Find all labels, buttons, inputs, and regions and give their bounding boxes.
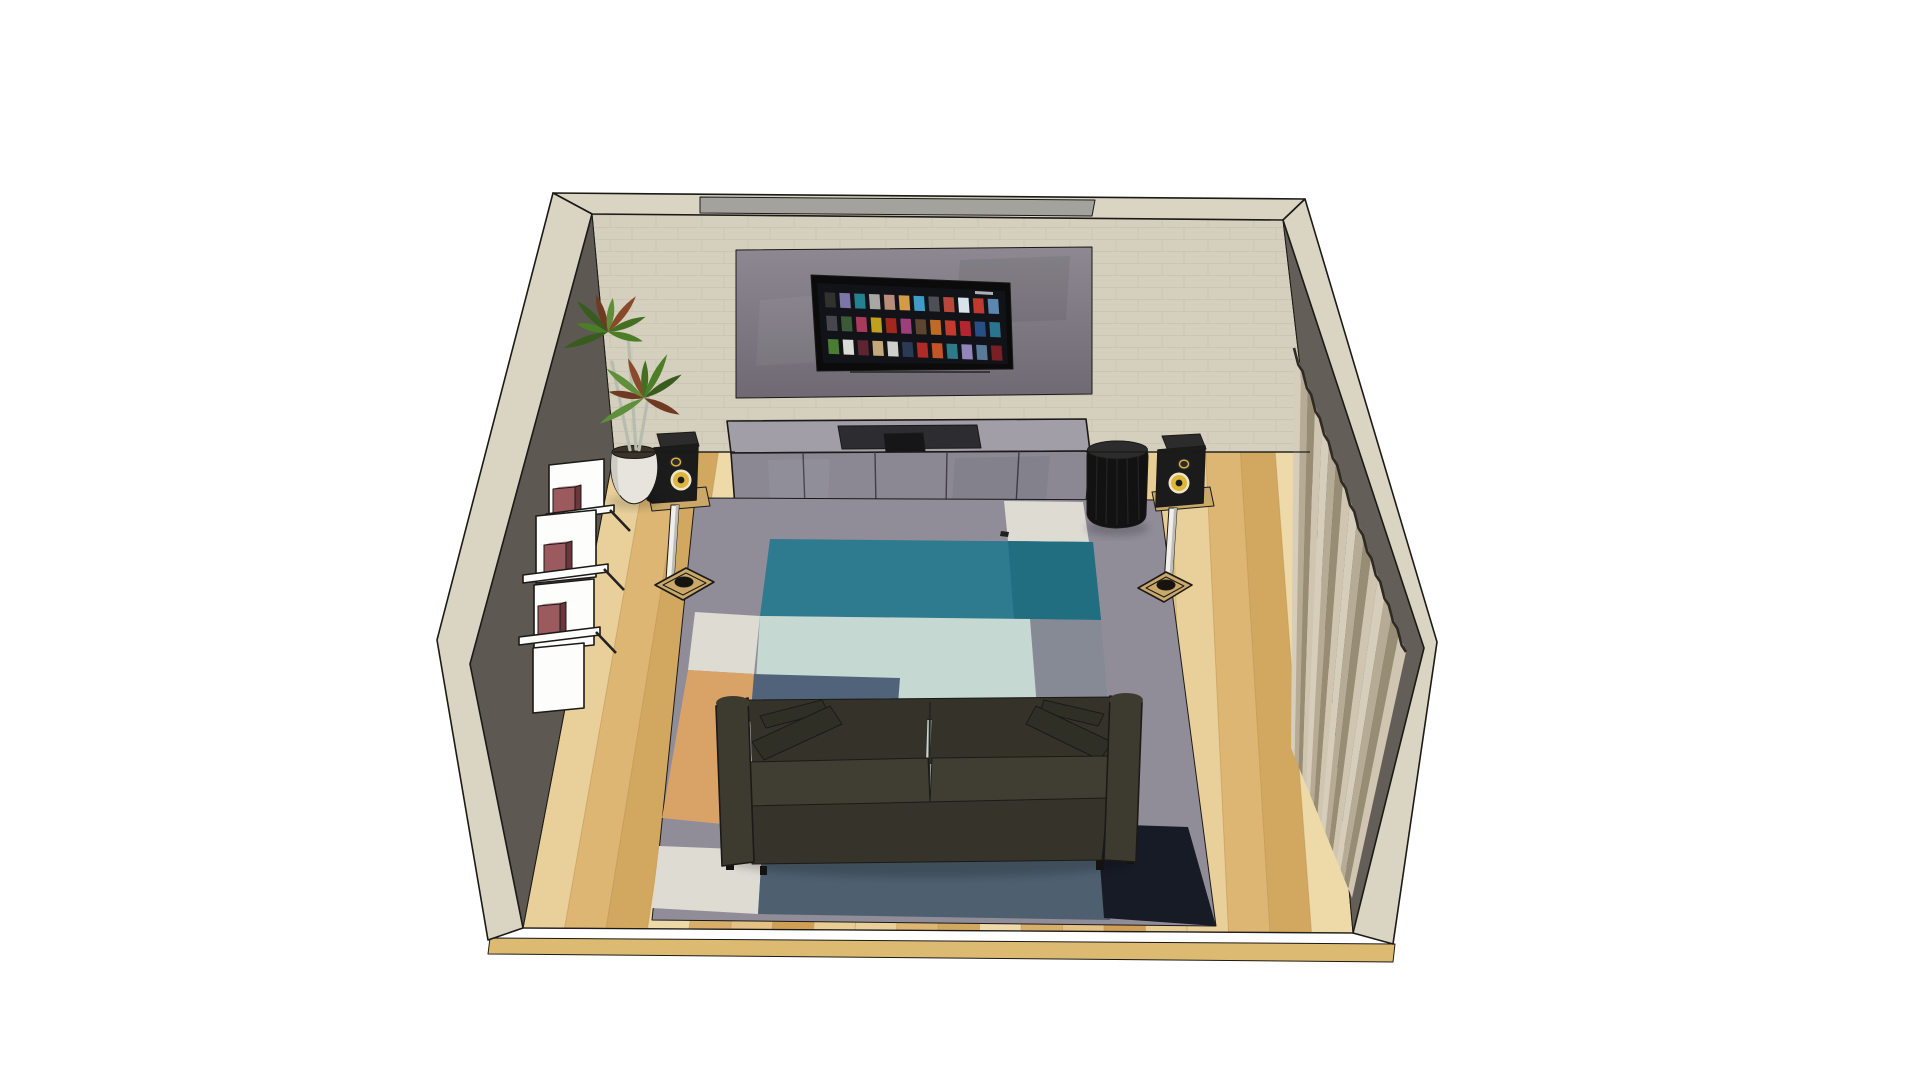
movie-poster [854,294,866,309]
movie-poster [915,319,927,334]
movie-poster [885,318,897,333]
movie-poster [974,322,986,337]
rug-patch-ivory-back [1004,501,1089,542]
movie-poster [871,317,883,332]
panel-top-cap [700,197,1095,216]
movie-poster [917,343,929,358]
movie-poster [928,296,940,311]
movie-poster [988,299,1000,314]
movie-poster [824,292,836,307]
movie-poster [946,344,958,359]
right-base-flange [1157,580,1175,590]
movie-poster [991,345,1003,360]
movie-poster [958,298,970,313]
left-base-flange [675,577,693,587]
sofa-foot [760,866,767,875]
rug-patch-teal-deep [1008,541,1101,620]
tv[interactable] [811,275,1013,372]
movie-poster [900,319,912,334]
movie-poster [902,342,914,357]
sofa-seat-cushion [746,758,930,808]
remote-on-rug[interactable] [1000,531,1009,537]
movie-poster [943,297,955,312]
movie-poster [828,339,840,354]
room-3d-viewport[interactable] [0,0,1920,1080]
movie-poster [869,294,881,309]
movie-poster [960,321,972,336]
movie-poster [976,345,988,360]
movie-poster [945,320,957,335]
movie-poster [856,317,868,332]
render-canvas[interactable] [0,0,1920,1080]
door-sheen [768,459,830,501]
door-shade [952,456,1050,501]
movie-poster [887,341,899,356]
sofa-right-arm [1104,696,1142,862]
movie-poster [857,340,869,355]
shelf-lower-panel [533,643,584,713]
movie-poster [989,322,1001,337]
movie-poster [932,343,944,358]
movie-poster [930,320,942,335]
sofa-left-arm [716,698,754,866]
movie-poster [973,298,985,313]
movie-poster [839,293,851,308]
sofa-foot [1096,860,1104,870]
movie-poster [913,296,925,311]
movie-poster [884,295,896,310]
subwoofer[interactable] [1085,441,1149,536]
movie-poster [899,295,911,310]
sofa-seat-cushion [930,756,1110,802]
movie-poster [872,341,884,356]
sofa[interactable] [716,693,1143,878]
movie-poster [826,316,838,331]
movie-poster [961,344,973,359]
sofa-front-skirt [746,798,1108,864]
movie-poster [841,316,853,331]
movie-poster [843,340,855,355]
rug-patch-ivory-left [688,612,760,674]
media-device [884,433,925,452]
